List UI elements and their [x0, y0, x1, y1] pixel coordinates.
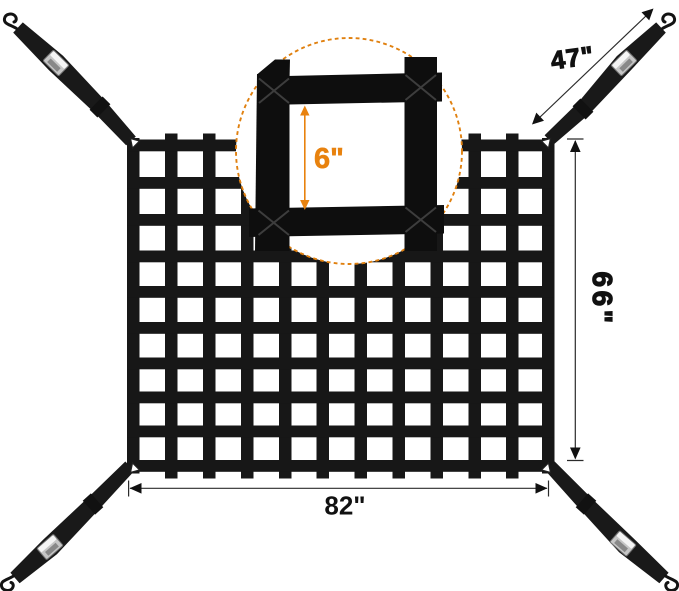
- svg-text:47": 47": [549, 42, 596, 76]
- svg-text:66": 66": [587, 272, 618, 327]
- svg-text:6": 6": [314, 143, 344, 175]
- svg-text:82": 82": [324, 491, 365, 521]
